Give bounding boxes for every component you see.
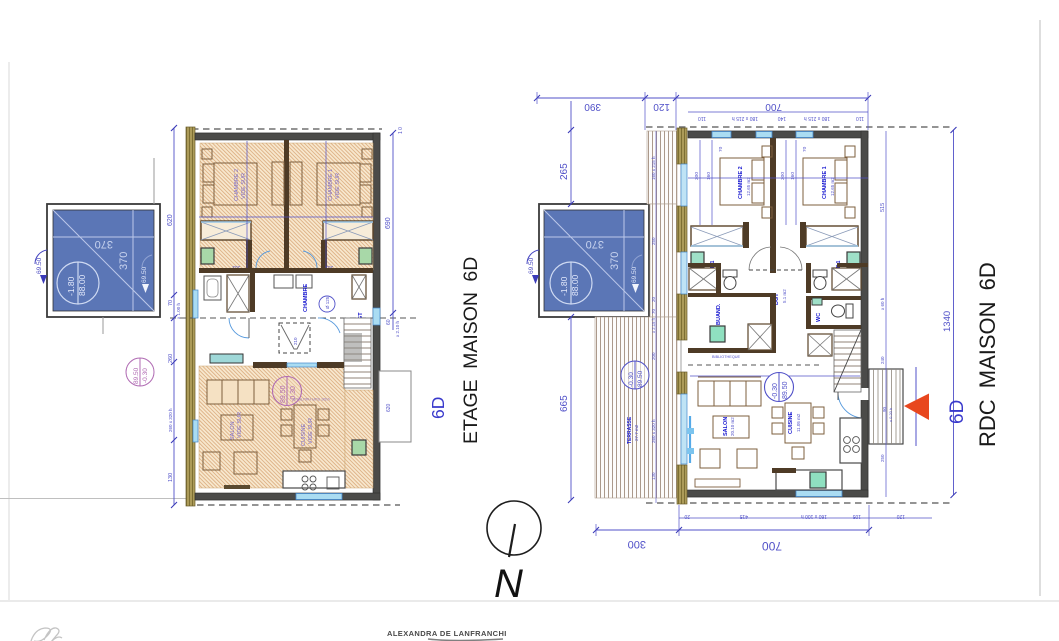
svg-text:CHAMBRE 1: CHAMBRE 1: [328, 169, 334, 201]
svg-text:665: 665: [559, 395, 570, 412]
svg-text:89.50: 89.50: [280, 385, 287, 403]
svg-text:12.65 m2: 12.65 m2: [746, 177, 751, 196]
svg-text:Ø 125: Ø 125: [325, 296, 330, 309]
svg-text:x 0.20 h: x 0.20 h: [888, 408, 893, 422]
svg-text:88.00: 88.00: [77, 274, 87, 296]
svg-text:20: 20: [651, 296, 656, 302]
svg-text:20.10 m2: 20.10 m2: [730, 417, 735, 436]
svg-text:210: 210: [293, 337, 298, 345]
svg-text:89.50: 89.50: [133, 367, 140, 384]
svg-text:250: 250: [651, 237, 656, 245]
svg-text:700: 700: [762, 539, 782, 553]
svg-text:TERRASSE: TERRASSE: [627, 416, 633, 444]
svg-text:69.50: 69.50: [631, 266, 638, 283]
svg-text:x 60 h: x 60 h: [880, 297, 885, 310]
svg-text:200: 200: [651, 352, 656, 360]
svg-text:VIDE SUR HAUTEUR: VIDE SUR HAUTEUR: [292, 397, 330, 401]
svg-text:VIDE SUR: VIDE SUR: [237, 412, 243, 438]
svg-text:120: 120: [653, 101, 670, 112]
svg-text:69.50: 69.50: [36, 257, 43, 274]
svg-text:130: 130: [651, 472, 656, 480]
svg-text:VIDE SUR: VIDE SUR: [308, 418, 314, 444]
svg-text:370: 370: [95, 238, 113, 250]
svg-text:VIDE SUR: VIDE SUR: [335, 173, 341, 199]
svg-text:BUAND.: BUAND.: [716, 303, 722, 325]
svg-text:BIBLIOTHEQUE: BIBLIOTHEQUE: [712, 355, 741, 359]
svg-text:130: 130: [168, 473, 174, 482]
svg-text:5.1 m2: 5.1 m2: [782, 289, 787, 303]
svg-text:ETAGE MAISON 6D: ETAGE MAISON 6D: [460, 257, 482, 444]
svg-text:105: 105: [852, 513, 861, 519]
svg-text:x 2.10 h: x 2.10 h: [395, 320, 400, 337]
svg-text:180 x 215 h: 180 x 215 h: [732, 115, 758, 121]
svg-text:1 0: 1 0: [398, 127, 404, 134]
svg-text:60: 60: [386, 319, 392, 325]
svg-text:CHAMBRE 2: CHAMBRE 2: [738, 166, 744, 199]
svg-text:WC: WC: [816, 313, 822, 322]
svg-text:250: 250: [880, 454, 885, 462]
svg-text:265: 265: [559, 163, 570, 180]
svg-text:VIDE SUR: VIDE SUR: [241, 173, 247, 199]
svg-text:CUISINE: CUISINE: [301, 423, 307, 446]
svg-text:70: 70: [168, 300, 174, 306]
svg-text:CHAMBRE 1: CHAMBRE 1: [822, 166, 828, 199]
svg-text:415: 415: [739, 513, 748, 519]
svg-text:160 x 100 h: 160 x 100 h: [801, 513, 827, 519]
svg-text:CHAMBRE: CHAMBRE: [303, 284, 309, 312]
svg-text:69.50: 69.50: [528, 257, 535, 274]
svg-text:-0.30: -0.30: [142, 368, 149, 383]
svg-text:CUISINE: CUISINE: [788, 411, 794, 434]
svg-text:180 x 215 h: 180 x 215 h: [804, 115, 830, 121]
svg-text:12.65 m2: 12.65 m2: [830, 177, 835, 196]
svg-text:x 1.00 h: x 1.00 h: [176, 302, 181, 319]
svg-text:300: 300: [780, 172, 786, 180]
svg-text:370: 370: [118, 252, 130, 270]
svg-text:390: 390: [584, 101, 601, 112]
svg-text:11.05 m2: 11.05 m2: [796, 413, 801, 432]
svg-text:690: 690: [385, 217, 392, 229]
svg-text:260 x 320 h: 260 x 320 h: [651, 419, 656, 443]
svg-text:300: 300: [694, 172, 700, 180]
svg-text:700: 700: [765, 101, 782, 112]
svg-text:6D: 6D: [428, 397, 448, 419]
svg-text:-1.80: -1.80: [66, 276, 76, 296]
svg-text:89.50: 89.50: [782, 381, 789, 399]
svg-text:300: 300: [628, 538, 646, 550]
svg-text:260 x 320 h: 260 x 320 h: [168, 408, 173, 432]
svg-text:240: 240: [880, 356, 885, 364]
svg-text:-1.80: -1.80: [559, 276, 569, 296]
svg-text:120: 120: [896, 513, 905, 519]
svg-text:620: 620: [167, 214, 174, 226]
svg-text:160 x 215 h: 160 x 215 h: [651, 156, 656, 180]
svg-text:27.7 m2: 27.7 m2: [634, 424, 639, 441]
svg-text:260: 260: [168, 354, 174, 363]
svg-text:20: 20: [684, 513, 690, 519]
svg-text:160: 160: [706, 172, 712, 180]
svg-text:1340: 1340: [942, 311, 953, 332]
svg-text:70: 70: [651, 308, 656, 314]
svg-text:88.00: 88.00: [570, 274, 580, 296]
svg-text:x 2.15 h: x 2.15 h: [651, 317, 656, 333]
svg-text:-0.30: -0.30: [628, 372, 635, 387]
svg-text:110: 110: [698, 115, 706, 121]
svg-text:160: 160: [790, 172, 796, 180]
svg-text:RDC MAISON 6D: RDC MAISON 6D: [975, 262, 1000, 447]
svg-text:370: 370: [586, 238, 604, 250]
svg-text:CHAMBRE 2: CHAMBRE 2: [234, 169, 240, 201]
svg-text:70: 70: [802, 146, 808, 152]
svg-text:N: N: [494, 562, 523, 606]
svg-text:SALON: SALON: [723, 417, 729, 436]
svg-text:89.50: 89.50: [637, 370, 644, 387]
svg-text:110: 110: [856, 115, 864, 121]
svg-text:370: 370: [609, 252, 621, 270]
svg-text:-0.30: -0.30: [772, 383, 779, 399]
svg-text:SALON: SALON: [230, 421, 236, 440]
svg-text:70: 70: [718, 146, 724, 152]
svg-text:515: 515: [880, 203, 886, 212]
svg-text:140: 140: [777, 115, 786, 121]
svg-text:6D: 6D: [947, 400, 968, 424]
svg-text:69.50: 69.50: [141, 266, 148, 283]
svg-text:ALEXANDRA DE LANFRANCHI: ALEXANDRA DE LANFRANCHI: [387, 629, 507, 638]
svg-text:620: 620: [386, 403, 392, 412]
